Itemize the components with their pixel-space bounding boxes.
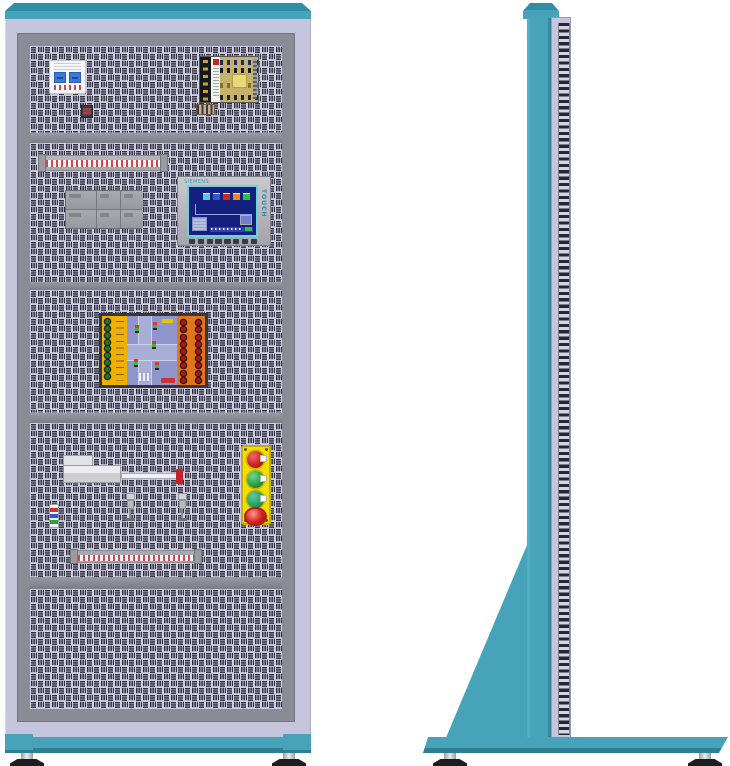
banana-socket-red[interactable] <box>196 335 201 340</box>
banana-socket-green[interactable] <box>105 374 110 379</box>
leveling-foot <box>272 753 306 766</box>
banana-socket-red[interactable] <box>181 371 186 376</box>
terminal-strip-lower <box>71 550 201 563</box>
traffic-light-training-board <box>99 313 208 388</box>
bay-divider <box>30 577 282 589</box>
banana-socket-red[interactable] <box>181 378 186 383</box>
terminal-row <box>78 555 194 561</box>
inductive-sensor <box>125 493 135 524</box>
button-label-tag <box>260 475 267 482</box>
zebra-crossing <box>139 373 149 381</box>
circuit-breaker <box>49 60 86 94</box>
cabinet-side-view <box>420 3 730 766</box>
screen-tank-icons <box>203 193 250 200</box>
hmi-touch-label: TOUCH <box>260 189 267 218</box>
pushbutton-station <box>241 445 271 525</box>
bay-divider <box>30 133 282 143</box>
traffic-signal-led <box>153 322 157 330</box>
banana-socket-green[interactable] <box>105 326 110 331</box>
leveling-foot <box>433 753 467 766</box>
panel-top-bay <box>30 46 282 133</box>
button-label-tag <box>260 455 267 462</box>
board-right-socket-column[interactable] <box>177 316 205 385</box>
plc-block <box>97 210 120 228</box>
breaker-label-area <box>54 63 81 70</box>
output-connector <box>196 104 215 115</box>
panel-control-bay: SIEMENS TOUCH <box>30 143 282 283</box>
hmi-function-key[interactable] <box>233 239 239 244</box>
traffic-signal-led <box>135 325 139 333</box>
button-label-tag <box>260 495 267 502</box>
screen-vessel-graphic <box>240 215 252 225</box>
screen-pipework-graphic <box>195 204 252 215</box>
plc-block <box>97 191 120 209</box>
plc-module <box>65 190 142 229</box>
front-base-plinth <box>5 737 311 753</box>
linear-actuator-body <box>63 465 121 483</box>
banana-socket-red[interactable] <box>196 327 201 332</box>
banana-socket-red[interactable] <box>181 363 186 368</box>
hmi-function-key[interactable] <box>189 239 195 244</box>
banana-socket-red[interactable] <box>181 349 186 354</box>
emergency-stop-button[interactable] <box>246 509 265 524</box>
banana-socket-green[interactable] <box>105 360 110 365</box>
plc-block <box>66 191 96 209</box>
banana-socket-red[interactable] <box>196 342 201 347</box>
board-left-socket-column[interactable] <box>102 316 127 385</box>
screw-icon <box>265 519 268 522</box>
traffic-signal-led <box>152 341 156 349</box>
board-yellow-marker <box>162 319 173 323</box>
psu-terminal-block <box>200 57 211 102</box>
screw-icon <box>265 448 268 451</box>
side-panel-edge <box>551 17 571 740</box>
banana-socket-red[interactable] <box>181 320 186 325</box>
plinth-end-cap <box>283 734 311 753</box>
bay-divider <box>30 282 282 290</box>
banana-socket-red[interactable] <box>196 320 201 325</box>
panel-actuation-bay <box>30 423 282 578</box>
bay-divider <box>30 413 282 423</box>
din-connector <box>81 105 93 118</box>
cabinet-front-view: SIEMENS TOUCH <box>5 3 311 766</box>
panel-trainer-bay <box>30 290 282 413</box>
hmi-function-key[interactable] <box>198 239 204 244</box>
banana-socket-red[interactable] <box>196 349 201 354</box>
banana-socket-red[interactable] <box>181 335 186 340</box>
actuator-red-end-cap <box>176 469 183 484</box>
psu-circuit-board <box>220 57 258 102</box>
board-brand-label <box>161 378 175 383</box>
banana-socket-red[interactable] <box>181 342 186 347</box>
hmi-function-key[interactable] <box>215 239 221 244</box>
banana-socket-green[interactable] <box>105 340 110 345</box>
banana-socket-red[interactable] <box>196 378 201 383</box>
hmi-function-key[interactable] <box>224 239 230 244</box>
front-top-cap-edge <box>5 3 311 11</box>
plinth-end-cap <box>5 734 33 753</box>
terminal-row <box>46 160 160 167</box>
psu-label-strip <box>211 57 220 102</box>
inductive-sensor <box>177 493 187 524</box>
leveling-foot <box>688 753 722 766</box>
side-floor-base <box>423 737 728 753</box>
banana-socket-red[interactable] <box>196 363 201 368</box>
banana-socket-green[interactable] <box>105 333 110 338</box>
banana-socket-red[interactable] <box>181 327 186 332</box>
hmi-function-key[interactable] <box>207 239 213 244</box>
screen-detail-window <box>192 217 207 231</box>
banana-socket-red[interactable] <box>181 356 186 361</box>
hmi-touchscreen[interactable] <box>187 185 258 237</box>
hmi-function-key[interactable] <box>251 239 257 244</box>
screw-icon <box>244 448 247 451</box>
support-gusset <box>445 545 527 740</box>
leveling-foot <box>10 753 44 766</box>
panel-empty-bay <box>30 589 282 709</box>
switching-power-supply <box>199 56 259 103</box>
traffic-signal-led <box>155 362 159 370</box>
plc-block <box>66 210 96 228</box>
actuator-rod <box>121 473 177 479</box>
hmi-touch-panel: SIEMENS TOUCH <box>177 176 271 246</box>
perforated-panel-texture <box>30 589 282 709</box>
screen-button-bar <box>210 227 253 232</box>
signal-board <box>49 504 59 528</box>
breaker-terminal-marks <box>54 85 81 90</box>
breaker-toggle-left[interactable] <box>54 72 66 83</box>
hmi-function-keys[interactable] <box>189 239 257 244</box>
traffic-signal-led <box>134 359 138 367</box>
side-perforation-slots <box>558 23 570 735</box>
banana-socket-green[interactable] <box>105 367 110 372</box>
front-top-cap <box>5 11 311 19</box>
banana-socket-green[interactable] <box>105 346 110 351</box>
banana-socket-red[interactable] <box>196 356 201 361</box>
illustration-canvas: SIEMENS TOUCH <box>0 0 730 766</box>
front-panel-frame: SIEMENS TOUCH <box>17 33 295 722</box>
banana-socket-green[interactable] <box>105 353 110 358</box>
plc-block <box>121 210 144 228</box>
board-intersection-graphic <box>127 316 177 385</box>
banana-socket-red[interactable] <box>196 371 201 376</box>
terminal-strip-upper <box>39 155 167 171</box>
banana-socket-green[interactable] <box>105 319 110 324</box>
hmi-function-key[interactable] <box>242 239 248 244</box>
breaker-toggle-right[interactable] <box>69 72 81 83</box>
plc-block <box>121 191 144 209</box>
side-column <box>527 18 551 740</box>
